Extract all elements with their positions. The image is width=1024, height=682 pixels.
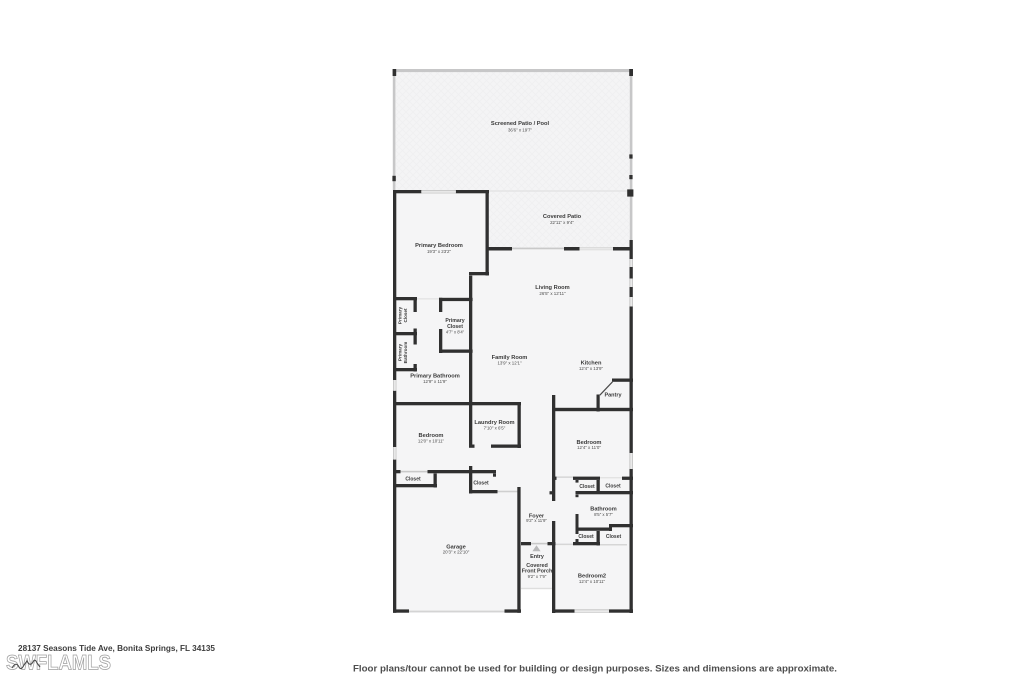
svg-text:Floor plans/tour cannot be use: Floor plans/tour cannot be used for buil…	[353, 664, 837, 674]
svg-text:9'2" x 7'9": 9'2" x 7'9"	[528, 574, 547, 579]
svg-text:12'0" x 10'11": 12'0" x 10'11"	[418, 439, 445, 444]
svg-text:Screened Patio / Pool: Screened Patio / Pool	[491, 121, 550, 127]
svg-text:4'7" x 8'4": 4'7" x 8'4"	[446, 330, 465, 335]
svg-text:Closet: Closet	[579, 484, 595, 490]
svg-text:13'9" x 12'1": 13'9" x 12'1"	[497, 361, 522, 366]
svg-text:20'3" x 22'10": 20'3" x 22'10"	[443, 549, 470, 554]
svg-text:22'11" x 9'4": 22'11" x 9'4"	[550, 220, 574, 225]
svg-text:Closet: Closet	[605, 483, 621, 489]
svg-text:Entry: Entry	[530, 554, 544, 560]
svg-text:Bathroom: Bathroom	[403, 342, 408, 364]
svg-text:Pantry: Pantry	[604, 393, 622, 399]
svg-text:12'4" x 11'0": 12'4" x 11'0"	[577, 445, 601, 450]
svg-text:9'2" x 11'9": 9'2" x 11'9"	[526, 518, 547, 523]
svg-text:Closet: Closet	[606, 534, 622, 540]
svg-text:12'4" x 10'11": 12'4" x 10'11"	[579, 579, 606, 584]
svg-text:Closet: Closet	[403, 308, 408, 323]
svg-text:Closet: Closet	[405, 476, 421, 482]
svg-text:SWFLAMLS: SWFLAMLS	[6, 651, 111, 675]
svg-text:12'9" x 11'9": 12'9" x 11'9"	[423, 379, 447, 384]
svg-text:8'5" x 5'7": 8'5" x 5'7"	[594, 512, 613, 517]
svg-text:7'10" x 6'5": 7'10" x 6'5"	[484, 426, 506, 431]
svg-text:Closet: Closet	[473, 480, 489, 486]
svg-text:19'3" x 23'2": 19'3" x 23'2"	[427, 249, 452, 254]
svg-text:Closet: Closet	[578, 534, 594, 540]
svg-text:36'6" x 19'7": 36'6" x 19'7"	[508, 127, 533, 132]
svg-text:12'4" x 13'9": 12'4" x 13'9"	[579, 366, 604, 371]
svg-text:26'5" x 12'11": 26'5" x 12'11"	[539, 291, 566, 296]
